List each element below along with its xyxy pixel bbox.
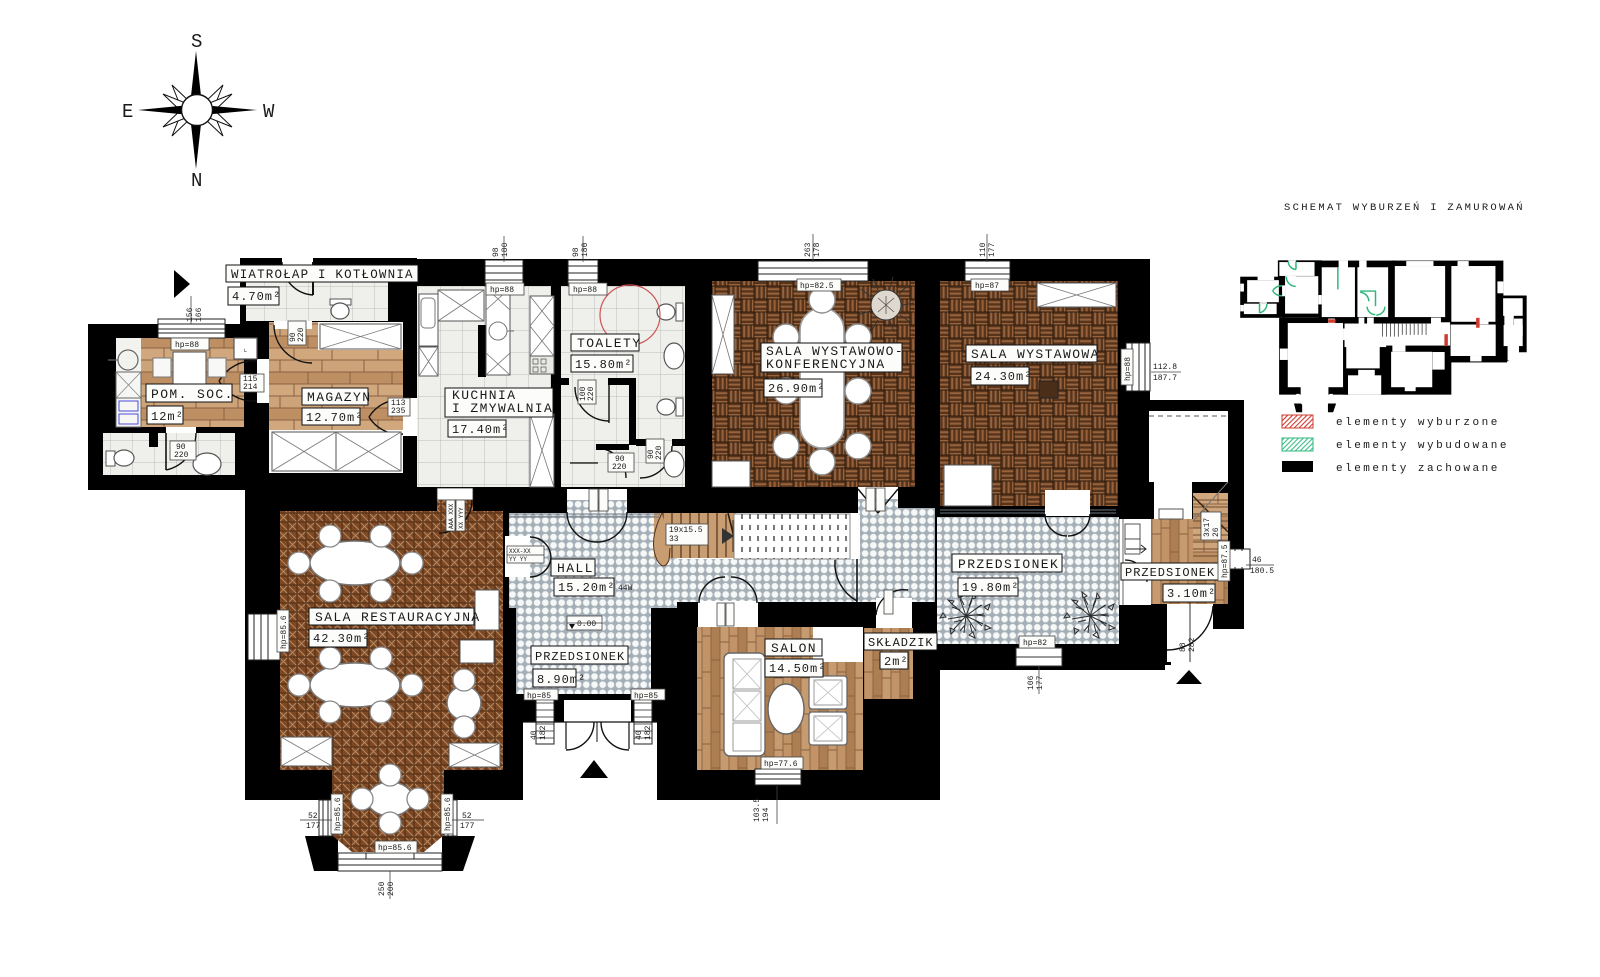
svg-text:177: 177 [306, 822, 321, 831]
svg-text:0.00: 0.00 [577, 620, 596, 629]
svg-text:HALL: HALL [557, 561, 594, 576]
svg-text:40: 40 [530, 730, 539, 740]
svg-text:98: 98 [572, 247, 581, 257]
svg-text:220: 220 [612, 463, 627, 472]
svg-text:112.8: 112.8 [1153, 363, 1177, 372]
svg-text:E: E [122, 101, 133, 123]
svg-text:N: N [191, 170, 202, 192]
svg-text:24.30m²: 24.30m² [975, 370, 1032, 384]
svg-text:17.40m²: 17.40m² [452, 423, 509, 437]
svg-text:SALON: SALON [771, 641, 817, 656]
svg-text:214: 214 [243, 383, 258, 392]
svg-text:elementy wybudowane: elementy wybudowane [1336, 440, 1509, 452]
svg-text:PRZEDSIONEK: PRZEDSIONEK [535, 650, 625, 664]
svg-text:elementy wyburzone: elementy wyburzone [1336, 417, 1500, 429]
svg-text:166: 166 [195, 307, 204, 322]
svg-text:KONFERENCYJNA: KONFERENCYJNA [766, 357, 886, 372]
svg-text:XX YYY: XX YYY [458, 507, 465, 529]
svg-text:W: W [263, 101, 275, 123]
svg-text:SCHEMAT WYBURZEŃ I ZAMUROWAŃ: SCHEMAT WYBURZEŃ I ZAMUROWAŃ [1284, 200, 1525, 214]
svg-text:26.90m²: 26.90m² [768, 382, 825, 396]
svg-text:WIATROŁAP I KOTŁOWNIA: WIATROŁAP I KOTŁOWNIA [231, 268, 414, 282]
svg-text:19.80m²: 19.80m² [962, 581, 1019, 595]
svg-text:15.20m²: 15.20m² [558, 581, 615, 595]
svg-text:220: 220 [297, 327, 306, 342]
svg-text:4.70m²: 4.70m² [232, 290, 281, 304]
svg-text:hp=87: hp=87 [975, 282, 999, 291]
svg-text:⌞: ⌞ [243, 345, 248, 354]
svg-text:XXX-XX: XXX-XX [509, 548, 531, 555]
svg-text:182: 182 [539, 725, 548, 740]
svg-text:106: 106 [1027, 675, 1036, 690]
svg-text:194: 194 [762, 807, 771, 822]
svg-text:YY YY: YY YY [509, 556, 527, 563]
svg-text:282: 282 [1188, 637, 1197, 652]
svg-text:elementy zachowane: elementy zachowane [1336, 463, 1500, 475]
svg-text:177: 177 [988, 242, 997, 257]
svg-text:19x15.5: 19x15.5 [669, 526, 703, 535]
svg-text:hp=77.6: hp=77.6 [764, 760, 798, 769]
svg-text:187.7: 187.7 [1153, 374, 1177, 383]
svg-text:3x17: 3x17 [1203, 518, 1212, 537]
svg-text:AAA XXX: AAA XXX [448, 503, 455, 529]
svg-text:S: S [191, 31, 202, 53]
svg-text:98: 98 [492, 247, 501, 257]
svg-text:hp=87.5: hp=87.5 [1221, 544, 1230, 578]
svg-text:8.90m²: 8.90m² [537, 673, 586, 687]
svg-text:hp=85.6: hp=85.6 [334, 797, 343, 831]
svg-text:hp=85.6: hp=85.6 [280, 615, 289, 649]
svg-text:hp=82: hp=82 [1023, 639, 1047, 648]
svg-text:180: 180 [501, 242, 510, 257]
svg-text:2m²: 2m² [884, 655, 909, 669]
svg-text:42.30m²: 42.30m² [313, 632, 370, 646]
svg-text:SALA WYSTAWOWA: SALA WYSTAWOWA [971, 347, 1100, 362]
svg-text:46: 46 [1252, 556, 1262, 565]
svg-text:15.80m²: 15.80m² [575, 358, 632, 372]
svg-text:182: 182 [644, 725, 653, 740]
svg-text:hp=88: hp=88 [573, 286, 597, 295]
svg-text:hp=85: hp=85 [527, 692, 551, 701]
svg-text:263: 263 [804, 242, 813, 257]
svg-text:hp=88: hp=88 [490, 286, 514, 295]
svg-text:177: 177 [460, 822, 475, 831]
svg-text:250: 250 [378, 881, 387, 896]
svg-text:SKŁADZIK: SKŁADZIK [868, 636, 934, 650]
svg-text:12m²: 12m² [151, 410, 184, 424]
svg-text:PRZEDSIONEK: PRZEDSIONEK [1125, 566, 1215, 580]
svg-text:hp=85.6: hp=85.6 [378, 844, 412, 853]
svg-text:200: 200 [387, 881, 396, 896]
svg-text:POM. SOC.: POM. SOC. [151, 387, 234, 402]
svg-text:220: 220 [655, 445, 664, 460]
svg-text:hp=88: hp=88 [1124, 357, 1133, 381]
svg-text:235: 235 [391, 407, 406, 416]
svg-text:12.70m²: 12.70m² [306, 411, 363, 425]
svg-text:14.50m²: 14.50m² [769, 662, 826, 676]
svg-text:I ZMYWALNIA: I ZMYWALNIA [452, 401, 553, 416]
svg-text:178: 178 [813, 242, 822, 257]
svg-text:88: 88 [1179, 642, 1188, 652]
svg-text:180: 180 [581, 242, 590, 257]
svg-text:SALA RESTAURACYJNA: SALA RESTAURACYJNA [315, 610, 481, 625]
svg-text:44W: 44W [618, 584, 633, 593]
svg-text:PRZEDSIONEK: PRZEDSIONEK [958, 557, 1059, 572]
svg-text:hp=85: hp=85 [634, 692, 658, 701]
svg-text:26: 26 [1212, 527, 1221, 537]
svg-text:3.10m²: 3.10m² [1167, 587, 1216, 601]
svg-text:103.5: 103.5 [753, 798, 762, 822]
svg-text:40: 40 [635, 730, 644, 740]
svg-text:156: 156 [186, 307, 195, 322]
svg-text:180.5: 180.5 [1250, 567, 1274, 576]
svg-text:220: 220 [587, 386, 596, 401]
svg-text:MAGAZYN: MAGAZYN [307, 390, 371, 405]
svg-text:hp=88: hp=88 [175, 341, 199, 350]
svg-text:hp=85.6: hp=85.6 [444, 797, 453, 831]
svg-text:33: 33 [669, 535, 679, 544]
svg-text:hp=82.5: hp=82.5 [800, 282, 834, 291]
svg-text:220: 220 [174, 451, 189, 460]
svg-text:TOALETY: TOALETY [577, 336, 641, 351]
svg-text:177: 177 [1036, 675, 1045, 690]
